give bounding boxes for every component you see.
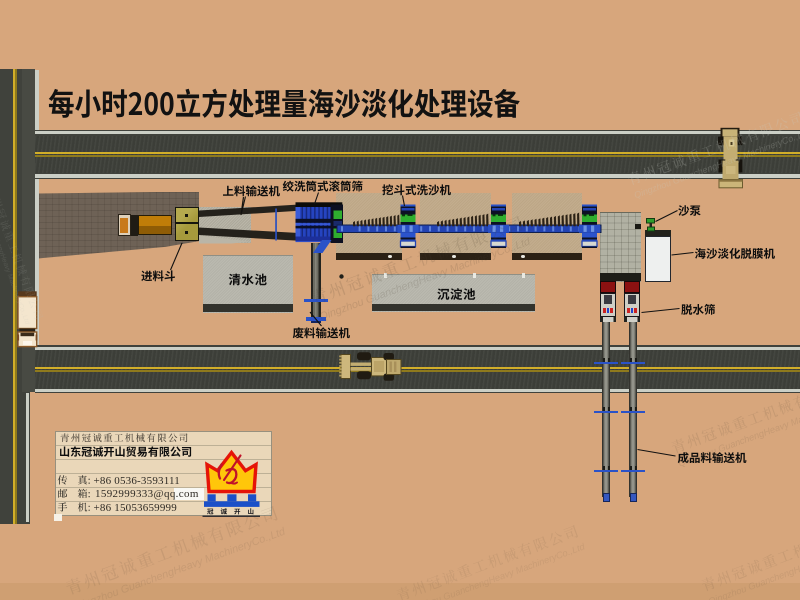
svg-text:Qingzhou GuanchengHeavy Machin: Qingzhou GuanchengHeavy MachineryCo.,Ltd	[318, 235, 533, 323]
svg-text:Qingzhou GuanchengHeavy Machin: Qingzhou GuanchengHeavy MachineryCo.,Ltd	[707, 531, 800, 600]
svg-text:Qingzhou GuanchengHeavy Machin: Qingzhou GuanchengHeavy MachineryCo.,Ltd	[402, 541, 587, 600]
svg-text:Qingzhou GuanchengHeavy Machin: Qingzhou GuanchengHeavy MachineryCo.,Ltd	[73, 525, 288, 600]
